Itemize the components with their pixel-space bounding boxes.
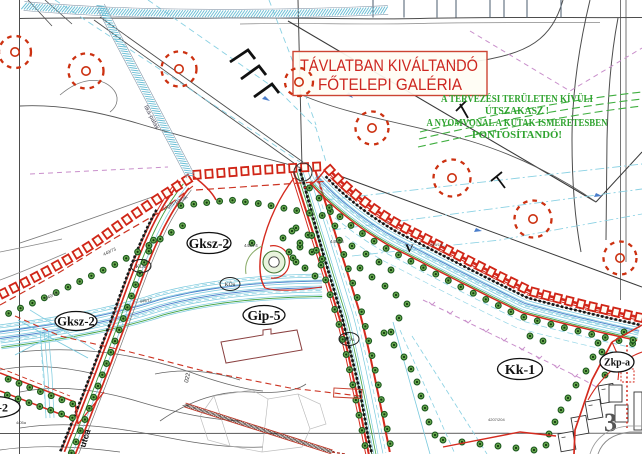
svg-text:PONTOSÍTANDÓ!: PONTOSÍTANDÓ! <box>472 129 562 141</box>
svg-text:449/74: 449/74 <box>244 243 258 248</box>
svg-text:Gksz-2: Gksz-2 <box>189 236 230 251</box>
svg-text:A TERVEZÉSI TERÜLETEN KÍVÜLI: A TERVEZÉSI TERÜLETEN KÍVÜLI <box>441 92 593 105</box>
svg-text:KÖu: KÖu <box>225 281 236 288</box>
svg-text:Kk-1: Kk-1 <box>505 363 535 378</box>
svg-text:KÖu: KÖu <box>344 336 355 343</box>
svg-text:4/05a: 4/05a <box>16 420 27 425</box>
svg-text:Gksz-2: Gksz-2 <box>57 315 95 329</box>
svg-text:KÖu: KÖu <box>136 263 147 270</box>
svg-text:TÁVLATBAN KIVÁLTANDÓ: TÁVLATBAN KIVÁLTANDÓ <box>300 56 478 75</box>
svg-text:Zkp-a: Zkp-a <box>604 358 630 369</box>
svg-text:V: V <box>405 241 414 255</box>
svg-text:449/76: 449/76 <box>330 239 344 244</box>
svg-text:4207/204: 4207/204 <box>488 417 505 422</box>
svg-text:sz-2: sz-2 <box>0 401 8 415</box>
svg-text:Gip-5: Gip-5 <box>247 308 280 323</box>
svg-text:FŐTELEPI GALÉRIA: FŐTELEPI GALÉRIA <box>318 75 463 94</box>
svg-text:A NYOMVONAL A KUTAK ISMERETESB: A NYOMVONAL A KUTAK ISMERETESBEN <box>427 118 608 129</box>
svg-text:449/10: 449/10 <box>430 242 443 247</box>
svg-text:ÚTSZAKASZ !: ÚTSZAKASZ ! <box>485 105 549 117</box>
